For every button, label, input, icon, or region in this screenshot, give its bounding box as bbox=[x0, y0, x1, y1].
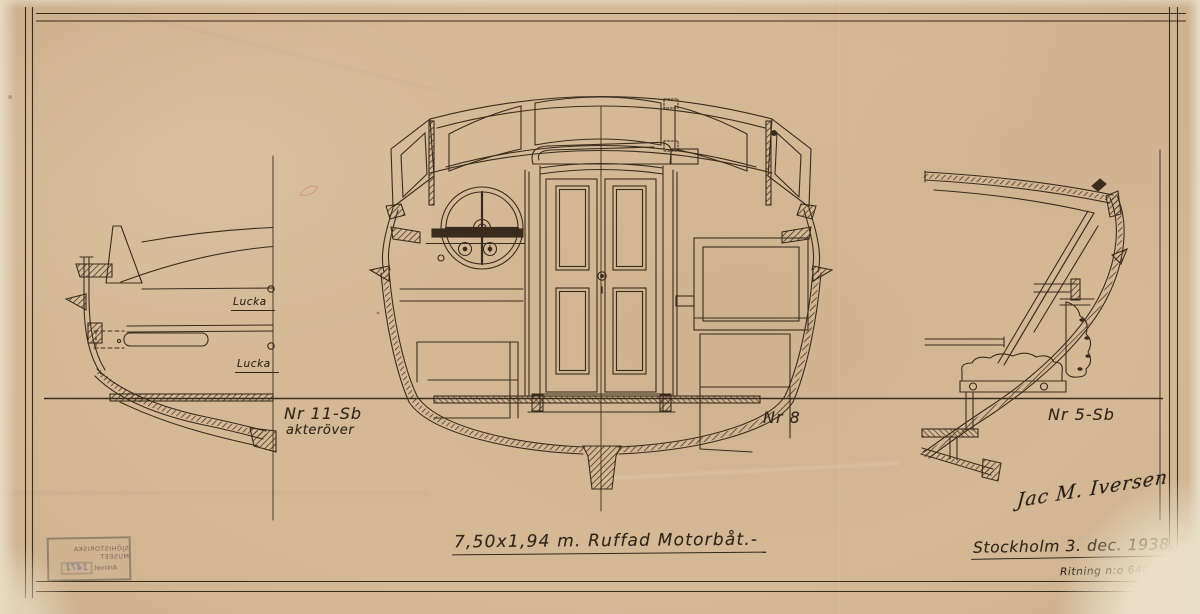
deck-cleat bbox=[1092, 179, 1106, 191]
rub-rail-fin bbox=[370, 266, 389, 281]
rub-rail-fin bbox=[813, 266, 832, 281]
drawing-sheet: Lucka Lucka Nr 11-Sb akteröver Nr 8 Nr 5… bbox=[0, 0, 1200, 614]
place-and-date: Stockholm 3. dec. 1938. bbox=[971, 535, 1184, 560]
drawing-title: 7,50x1,94 m. Ruffad Motorbåt.- bbox=[452, 530, 766, 556]
cabin-doors bbox=[528, 164, 675, 413]
steering-wheel bbox=[441, 187, 523, 269]
dashboard bbox=[432, 229, 523, 237]
section-aft-drawing bbox=[66, 156, 276, 520]
floorboards bbox=[922, 429, 978, 437]
section-label-aft: Nr 11-Sb bbox=[284, 404, 362, 423]
section-mid-drawing bbox=[370, 97, 832, 512]
hatch-label-2: Lucka bbox=[235, 358, 279, 373]
archive-stamp-museum: SJÖHISTORISKA MUSEET bbox=[49, 544, 129, 561]
windscreen-brace bbox=[998, 211, 1098, 365]
archive-stamp-number: 1471 bbox=[61, 561, 92, 574]
boat-sections-line-art bbox=[0, 0, 1200, 614]
border-frame bbox=[26, 7, 1187, 598]
cabin-sole bbox=[434, 396, 760, 403]
keel bbox=[583, 446, 621, 489]
section-sublabel-aft: akteröver bbox=[286, 423, 354, 438]
section-fore-drawing bbox=[921, 150, 1160, 520]
paper-specks bbox=[8, 95, 379, 314]
section-label-fore: Nr 5-Sb bbox=[1048, 405, 1115, 424]
archive-stamp: SJÖHISTORISKA MUSEET Arkivet 1471 bbox=[47, 536, 132, 581]
deck-hatch-bar bbox=[110, 394, 273, 401]
gauges bbox=[459, 243, 497, 256]
section-label-mid: Nr 8 bbox=[763, 408, 801, 427]
tiller-bar bbox=[124, 333, 208, 346]
archive-stamp-archive: Arkivet bbox=[94, 563, 117, 571]
hatch-label-1: Lucka bbox=[231, 296, 275, 311]
